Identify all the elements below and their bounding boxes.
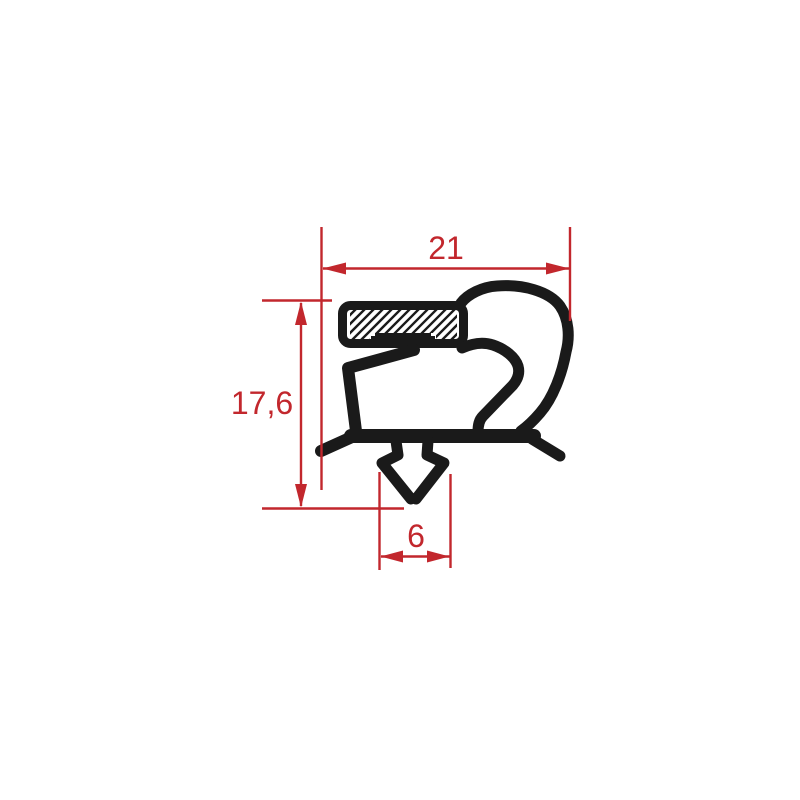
arrow-dart-right-icon [427, 551, 450, 563]
width-dimension-label: 21 [428, 230, 464, 266]
drawing-canvas: 21 17,6 6 [0, 0, 800, 800]
dart-right-barb [416, 441, 444, 499]
left-foot [321, 437, 352, 451]
arrow-dart-left-icon [381, 551, 404, 563]
pocket-key-step [371, 333, 435, 340]
arrow-height-up-icon [295, 302, 307, 326]
left-web [348, 350, 414, 431]
profile-outline [318, 286, 568, 499]
arrow-height-down-icon [295, 484, 307, 508]
arrow-width-left-icon [323, 263, 347, 275]
dimension-lines: 21 17,6 6 [231, 227, 570, 570]
arrow-width-right-icon [546, 263, 570, 275]
gasket-technical-drawing: 21 17,6 6 [0, 0, 800, 800]
right-stub [532, 439, 560, 456]
height-dimension-label: 17,6 [231, 385, 293, 421]
bulb-inner-curve [462, 343, 519, 432]
dart-width-dimension-label: 6 [407, 518, 425, 554]
dart-left-barb [382, 441, 411, 499]
